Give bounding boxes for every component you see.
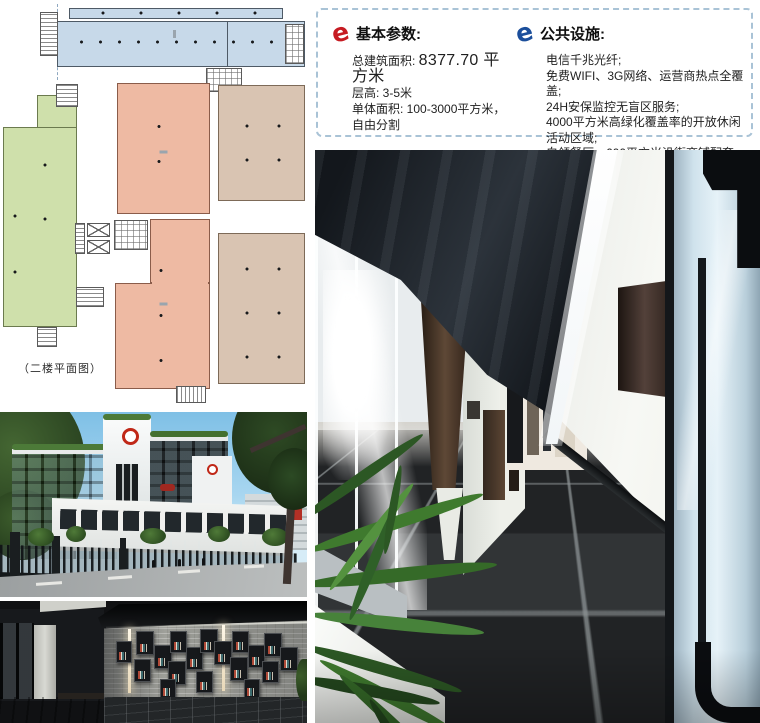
e-logo-blue-icon: e <box>514 20 536 45</box>
plan-stairwell <box>56 84 78 107</box>
shelf-box <box>244 679 260 699</box>
platform-edge <box>58 693 106 699</box>
plan-stair-west-annex <box>40 12 58 56</box>
roof-greenery <box>103 414 151 420</box>
facilities-section: e 公共设施: 电信千兆光纤; 免费WIFI、3G网络、运营商热点全覆盖; 24… <box>516 22 744 162</box>
facility-line: 4000平方米高绿化覆盖率的开放休闲活动区域; <box>546 115 744 146</box>
shelf-box <box>116 641 132 663</box>
facilities-title: 公共设施: <box>540 23 605 44</box>
red-car <box>160 484 175 491</box>
basic-params-section: e 基本参数: 总建筑面积: 8377.70 平方米 层高: 3-5米 单体面积… <box>332 22 512 133</box>
facilities-body: 电信千兆光纤; 免费WIFI、3G网络、运营商热点全覆盖; 24H安保监控无盲区… <box>516 53 744 162</box>
shelf-box <box>136 631 154 655</box>
param-line: 总建筑面积: 8377.70 平方米 <box>352 53 512 85</box>
right-glass-door <box>665 150 760 723</box>
param-line: 单体面积: 100-3000平方米，自由分割 <box>352 101 512 133</box>
e-logo-red-icon: e <box>330 20 352 45</box>
plant-corner <box>296 659 307 701</box>
info-panel: e 基本参数: 总建筑面积: 8377.70 平方米 层高: 3-5米 单体面积… <box>316 8 753 137</box>
plan-columns <box>139 109 191 189</box>
plan-caption: （二楼平面图） <box>18 360 102 376</box>
wood-floor <box>0 697 106 723</box>
logo-badge <box>122 428 139 445</box>
lobby-glass-frames <box>0 623 34 699</box>
shelf-box <box>262 661 279 683</box>
room-label-mark <box>160 303 168 306</box>
shelf-box <box>196 671 213 693</box>
shrub <box>208 526 230 542</box>
plan-stair-south <box>176 386 206 403</box>
lobby-floor <box>104 697 307 723</box>
plan-stair-core <box>75 223 85 254</box>
plan-stairwell <box>37 327 57 347</box>
tower-window <box>116 464 138 506</box>
shelf-box <box>232 631 249 653</box>
floorplan-image: （二楼平面图） <box>0 0 310 405</box>
plan-columns <box>231 247 309 372</box>
plan-washroom <box>114 220 148 250</box>
shelf-box <box>160 679 176 699</box>
plan-columns <box>84 10 280 16</box>
photo-corridor-interior <box>315 150 760 723</box>
plan-columns <box>41 138 49 268</box>
basic-params-body: 总建筑面积: 8377.70 平方米 层高: 3-5米 单体面积: 100-30… <box>332 53 512 133</box>
roof-greenery <box>12 444 117 450</box>
facilities-header: e 公共设施: <box>516 22 744 44</box>
glass-glow <box>323 270 395 480</box>
plan-stair-core <box>76 287 104 307</box>
door-frame-mullion <box>698 258 706 648</box>
facility-line: 电信千兆光纤; <box>546 53 744 69</box>
plan-columns <box>72 38 300 46</box>
param-value: 3-5米 <box>383 86 412 100</box>
plan-elevator <box>87 240 110 254</box>
basic-params-title: 基本参数: <box>356 23 421 44</box>
logo-badge <box>207 464 218 475</box>
roof-greenery <box>150 431 228 437</box>
plan-elevator <box>87 223 110 237</box>
photo-lobby-interior <box>0 601 307 723</box>
room-label-mark <box>160 151 168 154</box>
shelf-box <box>280 647 298 671</box>
shrub <box>66 526 86 542</box>
distant-door <box>483 410 505 500</box>
basic-params-header: e 基本参数: <box>332 22 512 44</box>
room-label-mark <box>173 30 176 38</box>
facility-line: 24H安保监控无盲区服务; <box>546 100 744 116</box>
shrub <box>140 528 166 544</box>
facility-line: 免费WIFI、3G网络、运营商热点全覆盖; <box>546 69 744 100</box>
plan-columns <box>143 248 195 383</box>
shrub <box>28 528 54 546</box>
shelf-box <box>134 659 151 682</box>
shelf-box <box>230 657 248 681</box>
photo-building-exterior <box>0 412 307 597</box>
param-line: 层高: 3-5米 <box>352 85 512 101</box>
floor-vignette <box>315 650 760 723</box>
wall-sign <box>467 401 480 419</box>
plan-columns <box>231 109 309 189</box>
param-label: 层高: <box>352 86 383 100</box>
param-label: 单体面积: <box>352 102 407 116</box>
plan-east-annex <box>285 24 304 64</box>
property-detail-page: （二楼平面图） e 基本参数: 总建筑面积: 8377.70 平方米 层高: 3… <box>0 0 760 723</box>
param-label: 总建筑面积: <box>352 54 419 68</box>
lobby-white-column <box>34 625 56 699</box>
plan-columns <box>11 188 19 300</box>
shelf-box <box>170 631 187 653</box>
